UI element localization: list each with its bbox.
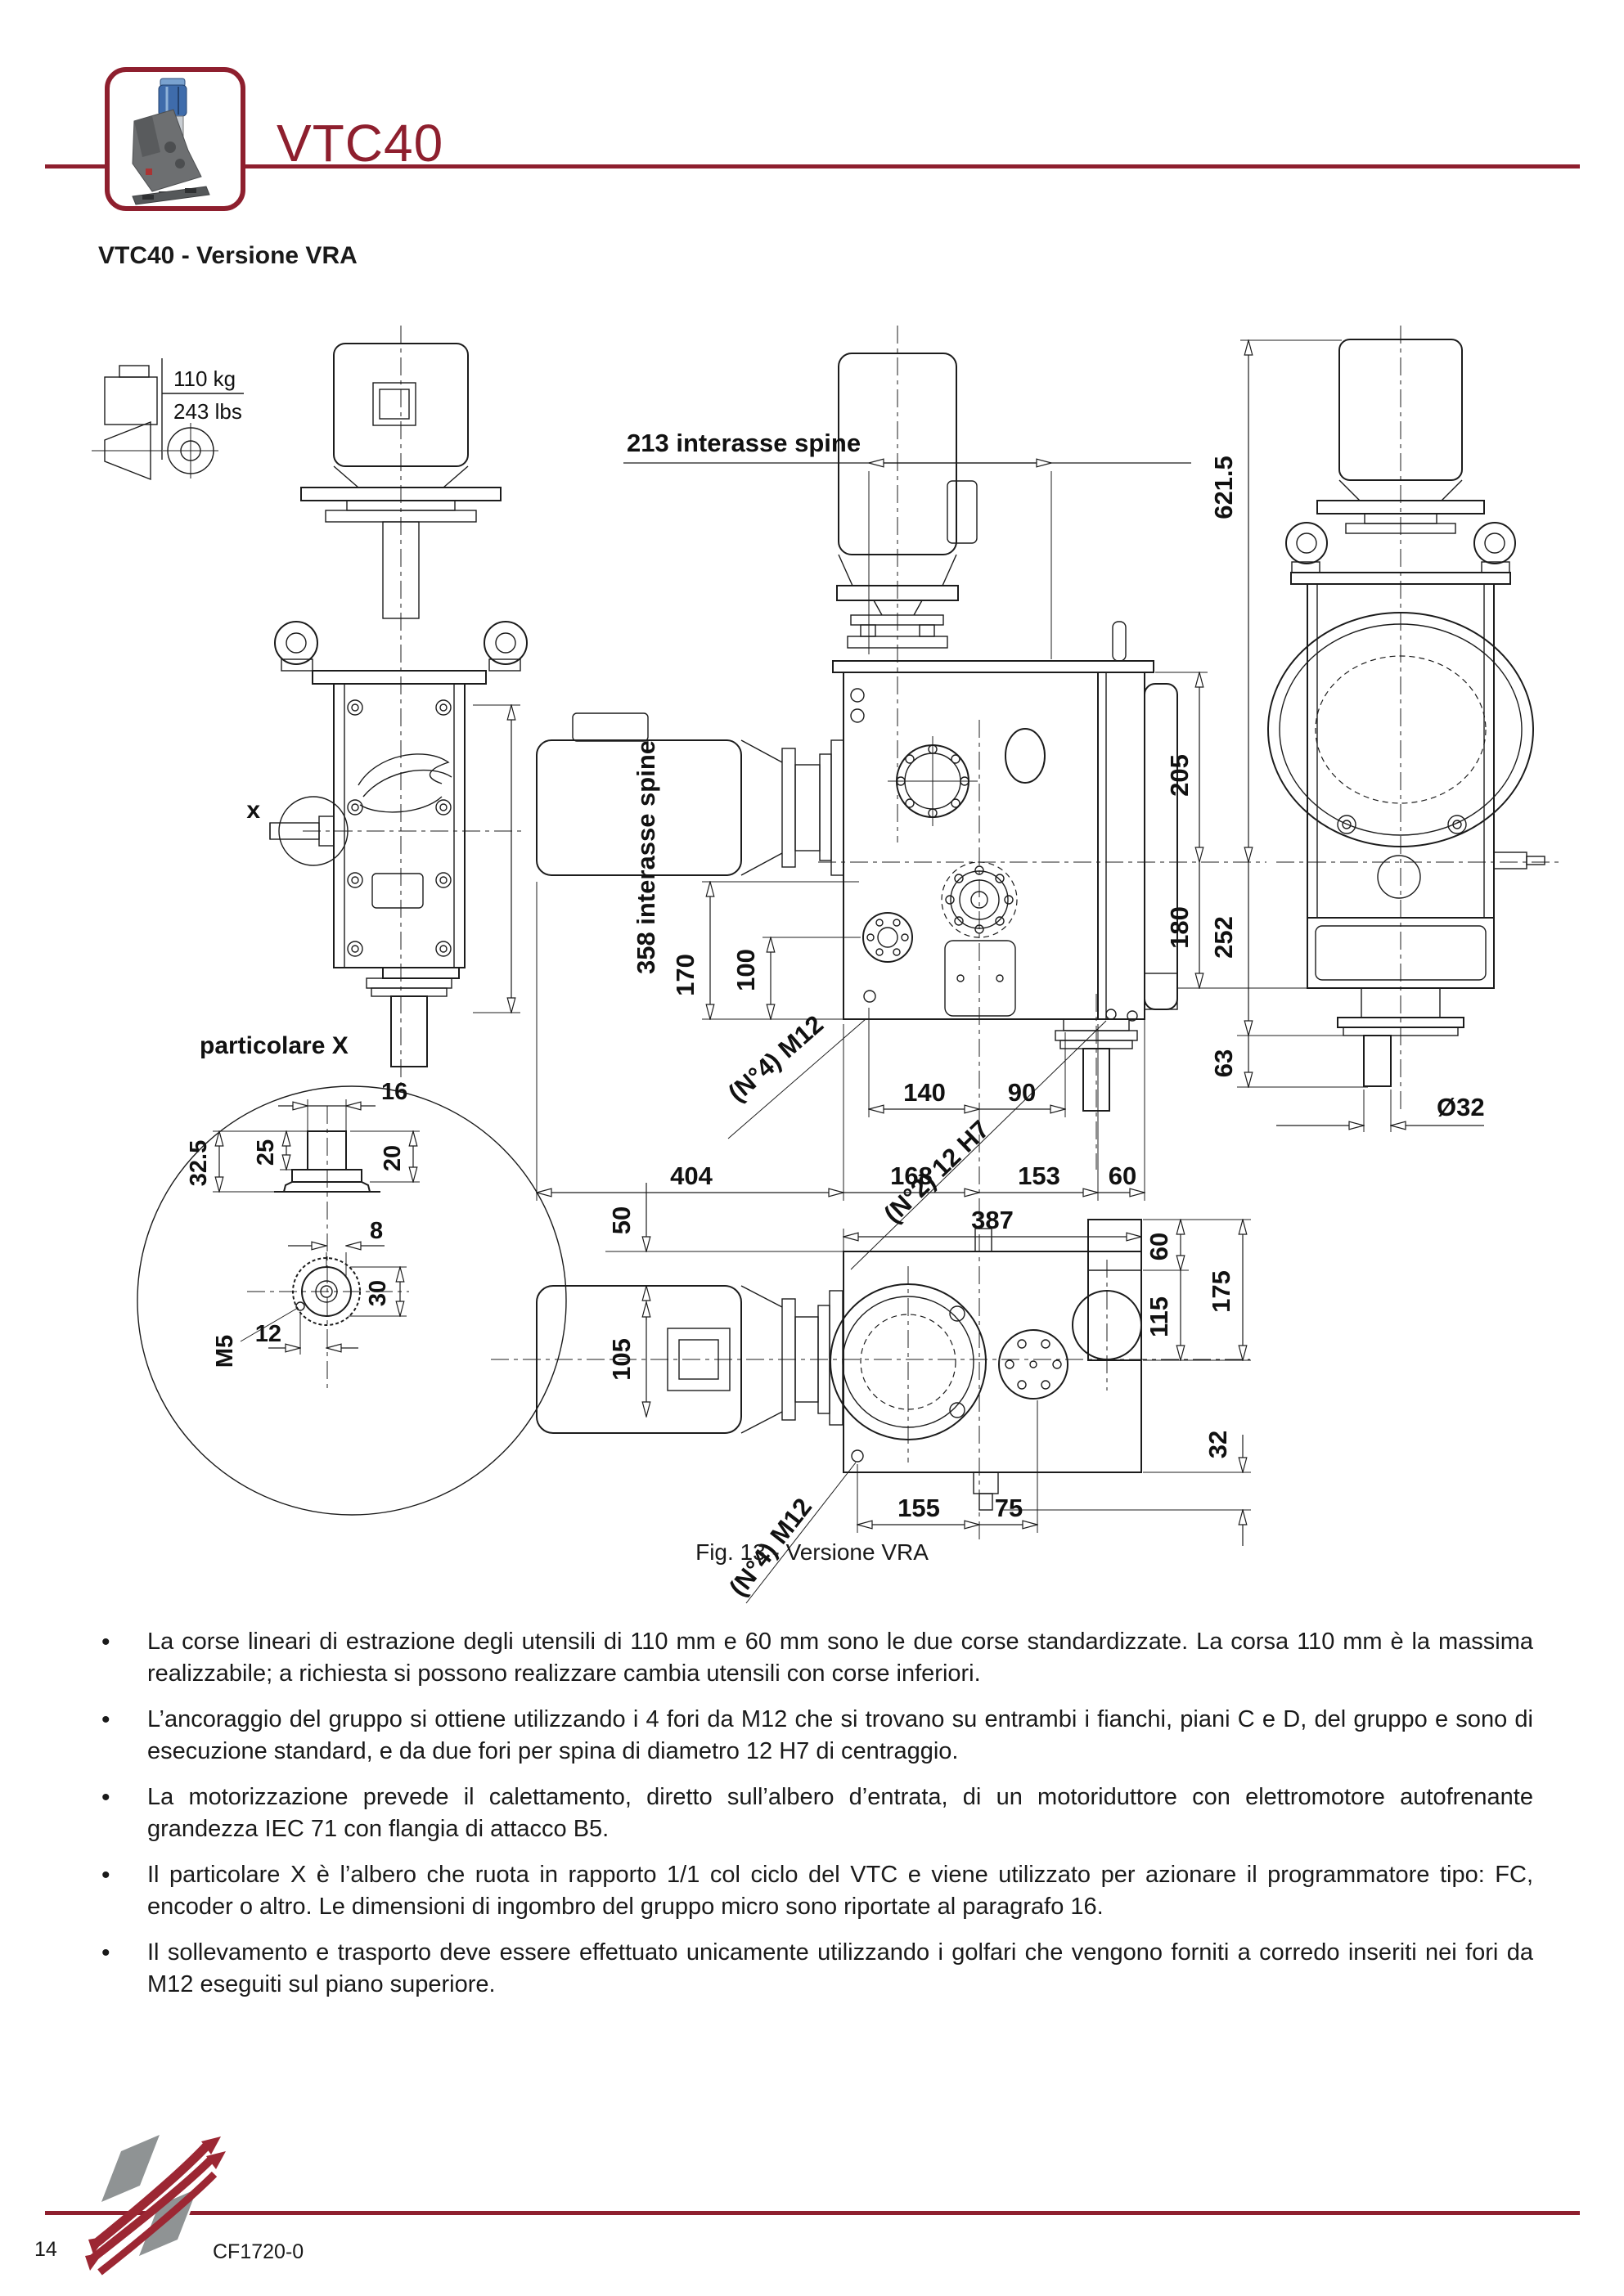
- figure-caption: Fig. 13 - Versione VRA: [0, 1539, 1624, 1566]
- pin-hole-12h7: [1106, 1009, 1116, 1019]
- dim-8: 8: [370, 1218, 383, 1244]
- datasheet-page: VTC40 VTC40 - Versione VRA 110 kg 243 lb…: [0, 0, 1624, 2296]
- notes-list: La corse lineari di estrazione degli ute…: [97, 1626, 1533, 2015]
- page-title: VTC40: [277, 113, 443, 173]
- taper-symbol: [92, 422, 218, 479]
- brand-logo-box: [105, 67, 245, 211]
- note-item: Il particolare X è l’albero che ruota in…: [97, 1859, 1533, 1923]
- page-number: 14: [34, 2238, 57, 2262]
- dim-140: 140: [903, 1078, 946, 1107]
- dim-32-5: 32.5: [186, 1140, 212, 1186]
- note-item: L’ancoraggio del gruppo si ottiene utili…: [97, 1704, 1533, 1768]
- dim-20: 20: [380, 1145, 406, 1171]
- pin-flange: [863, 913, 912, 962]
- dim-25: 25: [253, 1139, 279, 1166]
- dim-252: 252: [1209, 916, 1238, 959]
- dim-32-plan: 32: [1203, 1431, 1232, 1458]
- dim-155: 155: [897, 1494, 940, 1522]
- dim-60-plan: 60: [1145, 1233, 1173, 1260]
- dim-213: 213 interasse spine: [627, 429, 861, 457]
- dim-387: 387: [971, 1206, 1014, 1234]
- weight-symbol: 110 kg 243 lbs: [105, 358, 244, 460]
- header-rule: [45, 164, 1580, 168]
- dim-75: 75: [995, 1494, 1023, 1522]
- dimensions: 213 interasse spine 358 interasse spine …: [186, 340, 1485, 1603]
- left-view: x: [246, 326, 527, 1093]
- footer-rule: [45, 2211, 1580, 2215]
- note-item: La corse lineari di estrazione degli ute…: [97, 1626, 1533, 1690]
- weight-lbs: 243 lbs: [173, 399, 242, 424]
- dim-60-front: 60: [1109, 1161, 1136, 1190]
- side-motor: [537, 713, 843, 875]
- dim-115: 115: [1145, 1296, 1173, 1337]
- technical-drawing: 110 kg 243 lbs: [0, 319, 1624, 1611]
- plan-flange: [999, 1330, 1068, 1399]
- dim-170: 170: [671, 954, 700, 996]
- right-view: [1268, 326, 1561, 1112]
- detail-label: particolare X: [200, 1032, 349, 1059]
- document-code: CF1720-0: [213, 2240, 304, 2264]
- section-title: VTC40 - Versione VRA: [98, 242, 358, 270]
- dim-m5: M5: [212, 1335, 238, 1368]
- x-pointer-label: x: [246, 797, 260, 824]
- footer-logo-icon: [82, 2119, 229, 2290]
- m12-hole-front: [864, 991, 875, 1002]
- note-item: La motorizzazione prevede il calettament…: [97, 1782, 1533, 1845]
- dim-30: 30: [365, 1280, 391, 1306]
- upper-shaft-flange: [888, 736, 978, 826]
- label-m12-front: (N°4) M12: [722, 1009, 829, 1107]
- plan-view: [491, 1202, 1250, 1541]
- dim-358: 358 interasse spine: [632, 740, 660, 974]
- m12-hole-plan: [852, 1450, 863, 1462]
- dim-153: 153: [1018, 1161, 1060, 1190]
- m5-hole: [296, 1302, 304, 1310]
- dim-63: 63: [1209, 1049, 1238, 1077]
- dim-205: 205: [1165, 754, 1194, 797]
- dim-100: 100: [731, 949, 760, 991]
- dim-621-5: 621.5: [1209, 456, 1238, 519]
- weight-kg: 110 kg: [173, 366, 236, 391]
- dim-180: 180: [1165, 906, 1194, 949]
- dim-168: 168: [890, 1161, 933, 1190]
- cover-bolts: [348, 700, 451, 956]
- dim-175: 175: [1207, 1270, 1235, 1313]
- dim-90: 90: [1008, 1078, 1036, 1107]
- dim-404: 404: [670, 1161, 713, 1190]
- dim-50: 50: [607, 1206, 636, 1234]
- dim-dia32: Ø32: [1437, 1093, 1485, 1121]
- dim-16: 16: [381, 1079, 407, 1105]
- dim-105: 105: [607, 1338, 636, 1381]
- note-item: Il sollevamento e trasporto deve essere …: [97, 1937, 1533, 2001]
- product-photo-icon: [110, 72, 241, 206]
